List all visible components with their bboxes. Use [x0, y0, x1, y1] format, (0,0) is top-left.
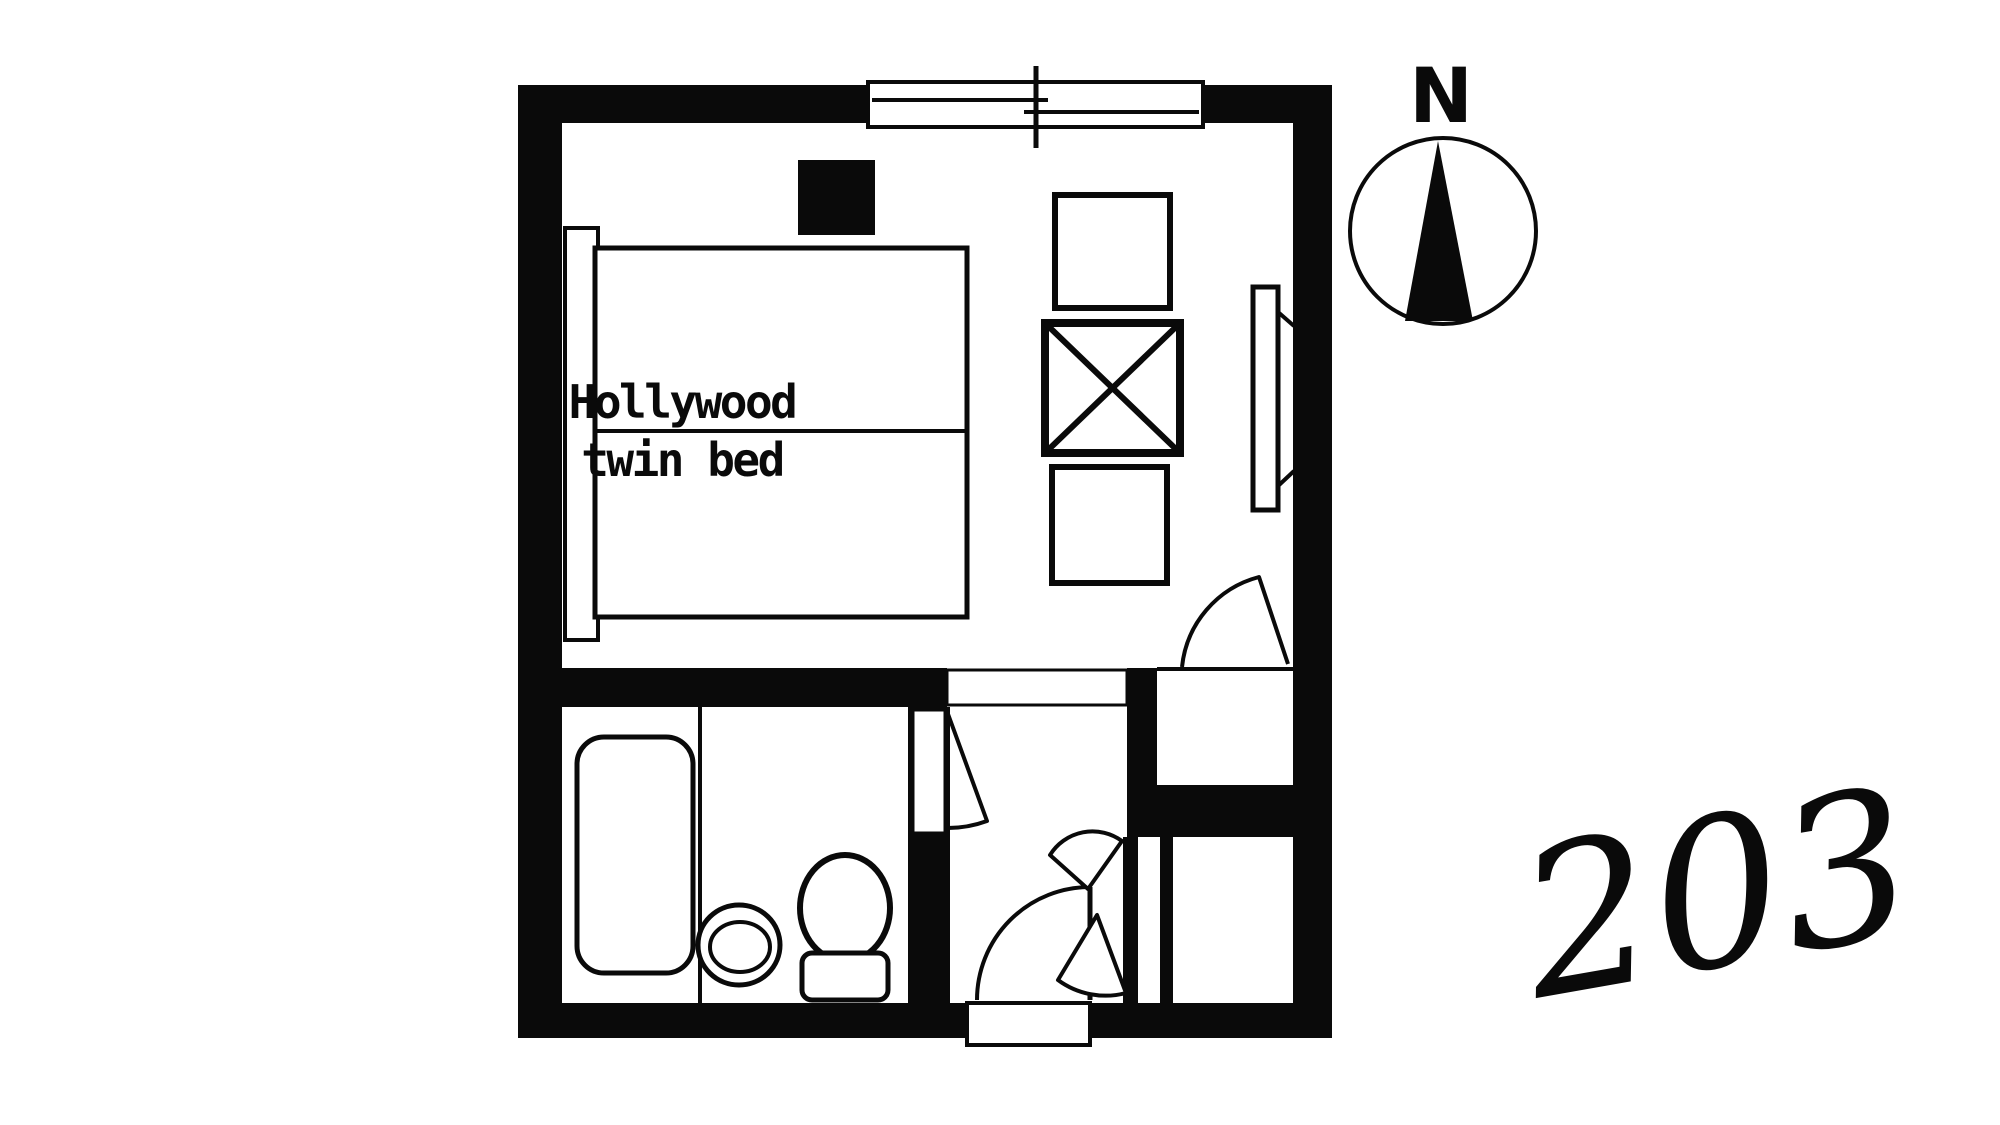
wash-basin-icon [698, 905, 780, 985]
toilet-bowl [800, 855, 890, 961]
floor-plan-page: Hollywood twin bed [0, 0, 2000, 1125]
wall-right [1293, 85, 1332, 1038]
bed-label-line1: Hollywood [569, 375, 796, 429]
wall-closet-band [1157, 785, 1293, 837]
north-label: N [1409, 51, 1473, 140]
wall-bedroom-bath [562, 668, 947, 707]
wall-hall-closet [1127, 668, 1157, 837]
bed-icon: Hollywood twin bed [565, 228, 967, 640]
tv-unit-icon [798, 160, 875, 235]
room-number: 203 [1503, 744, 1931, 1047]
wall-mirror-icon [1253, 287, 1294, 510]
hallway-opening [947, 670, 1127, 705]
bathroom-door-opening [913, 710, 945, 833]
entry-threshold-icon [967, 1003, 1090, 1045]
x-table-icon [1045, 323, 1180, 453]
floor-plan-drawing: Hollywood twin bed [0, 0, 2000, 1125]
chair-top-icon [1055, 195, 1170, 308]
wall-bottom [540, 1003, 1293, 1038]
closet-rail-right [1160, 837, 1173, 1003]
mirror-panel [1253, 287, 1278, 510]
bed-label-line2: twin bed [581, 433, 783, 487]
toilet-icon [800, 855, 890, 1000]
toilet-tank [802, 953, 888, 1000]
window-icon [868, 66, 1203, 148]
alcove-door-icon [1182, 577, 1288, 667]
table-and-chairs [1045, 195, 1180, 583]
closet-door-upper [1050, 831, 1122, 889]
compass-icon: N [1350, 51, 1536, 324]
closet-door-lower [1058, 915, 1126, 996]
wall-left [518, 85, 562, 1038]
chair-bottom-icon [1052, 467, 1167, 583]
bathroom-door-icon [948, 714, 987, 828]
bathtub-icon [577, 737, 693, 973]
closet-rail-left [1123, 837, 1138, 1003]
basin-inner [710, 922, 770, 972]
